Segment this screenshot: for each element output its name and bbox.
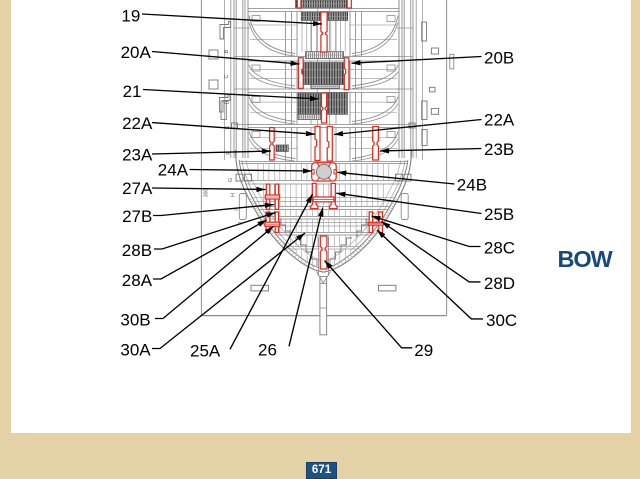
- svg-text:29: 29: [414, 341, 433, 360]
- svg-text:27A: 27A: [122, 179, 153, 198]
- svg-text:20B: 20B: [484, 49, 514, 68]
- svg-text:24B: 24B: [457, 176, 487, 195]
- svg-text:24A: 24A: [158, 160, 189, 179]
- svg-text:28A: 28A: [122, 271, 153, 290]
- svg-text:28B: 28B: [122, 241, 152, 260]
- svg-text:28C: 28C: [484, 239, 515, 258]
- svg-text:30B: 30B: [120, 310, 150, 329]
- svg-text:G: G: [228, 178, 234, 182]
- svg-text:27B: 27B: [122, 207, 152, 226]
- svg-text:30C: 30C: [486, 311, 517, 330]
- svg-text:300: 300: [204, 189, 210, 198]
- svg-text:22A: 22A: [484, 111, 515, 130]
- svg-text:D: D: [225, 100, 231, 104]
- svg-text:22A: 22A: [122, 114, 153, 133]
- svg-text:28D: 28D: [484, 274, 515, 293]
- svg-text:H: H: [231, 193, 237, 197]
- svg-text:26: 26: [258, 341, 277, 360]
- svg-text:30A: 30A: [120, 340, 151, 359]
- svg-text:25B: 25B: [484, 205, 514, 224]
- svg-text:23A: 23A: [122, 145, 153, 164]
- svg-text:19: 19: [121, 6, 140, 25]
- svg-text:23B: 23B: [484, 140, 514, 159]
- svg-text:C: C: [224, 74, 230, 78]
- svg-text:21: 21: [123, 82, 142, 101]
- svg-text:25A: 25A: [190, 342, 221, 361]
- svg-text:B: B: [224, 49, 230, 53]
- svg-text:20A: 20A: [121, 43, 152, 62]
